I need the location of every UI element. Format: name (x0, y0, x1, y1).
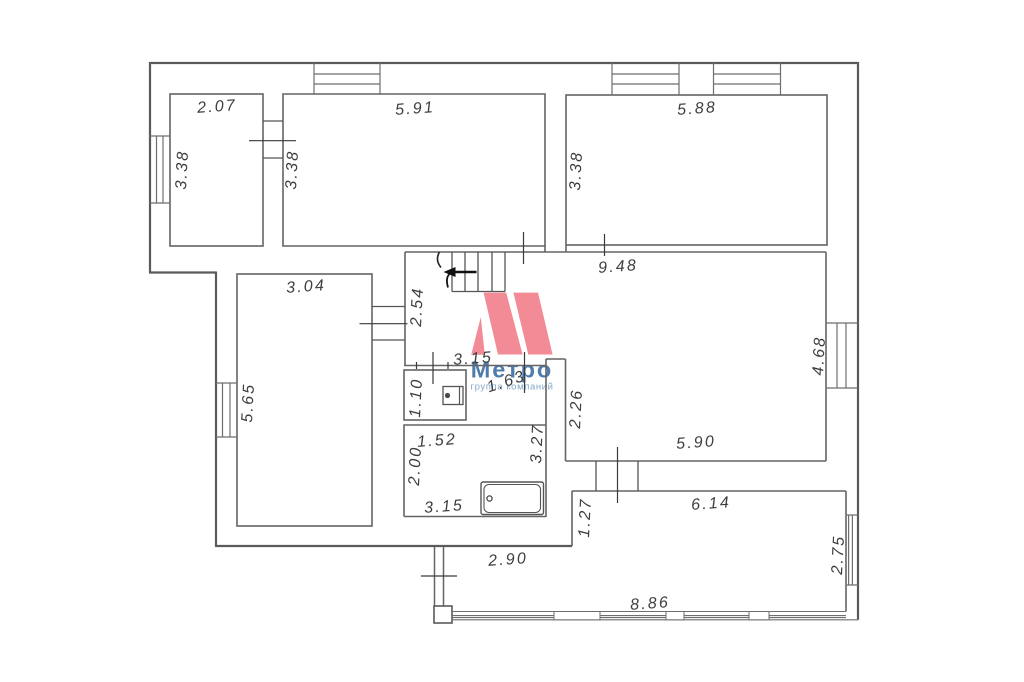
svg-text:1.10: 1.10 (407, 377, 426, 418)
svg-text:3.38: 3.38 (173, 149, 192, 190)
svg-text:2.26: 2.26 (567, 388, 586, 430)
svg-text:2.07: 2.07 (196, 97, 238, 117)
svg-text:1.27: 1.27 (576, 497, 595, 538)
svg-text:2.54: 2.54 (408, 286, 427, 328)
svg-text:4.68: 4.68 (810, 335, 829, 376)
svg-text:2.90: 2.90 (487, 550, 529, 570)
svg-text:3.15: 3.15 (453, 349, 494, 369)
svg-text:5.65: 5.65 (239, 382, 258, 423)
svg-text:2.75: 2.75 (829, 534, 848, 576)
svg-text:2.00: 2.00 (406, 445, 425, 487)
svg-text:3.15: 3.15 (424, 497, 465, 517)
svg-text:5.91: 5.91 (395, 99, 436, 119)
svg-text:5.90: 5.90 (676, 433, 717, 453)
svg-text:3.27: 3.27 (528, 423, 547, 464)
svg-text:3.38: 3.38 (283, 149, 302, 190)
svg-text:5.88: 5.88 (677, 99, 718, 119)
svg-text:3.04: 3.04 (286, 277, 327, 297)
svg-text:9.48: 9.48 (598, 257, 639, 277)
svg-text:3.38: 3.38 (567, 150, 586, 191)
svg-text:6.14: 6.14 (691, 494, 732, 514)
svg-text:8.86: 8.86 (630, 594, 671, 614)
